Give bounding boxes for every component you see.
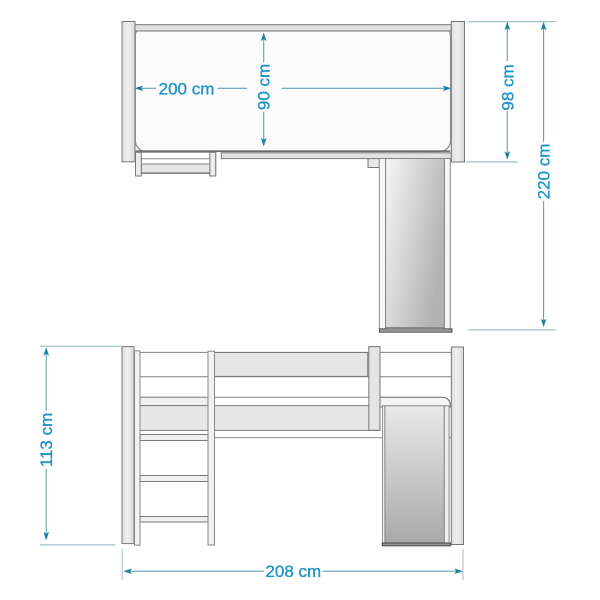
svg-text:113 cm: 113 cm — [37, 413, 56, 468]
svg-text:200 cm: 200 cm — [159, 79, 215, 98]
svg-text:220 cm: 220 cm — [535, 144, 554, 200]
svg-text:208 cm: 208 cm — [265, 562, 321, 581]
svg-text:98 cm: 98 cm — [498, 64, 517, 110]
svg-text:90 cm: 90 cm — [255, 64, 274, 110]
